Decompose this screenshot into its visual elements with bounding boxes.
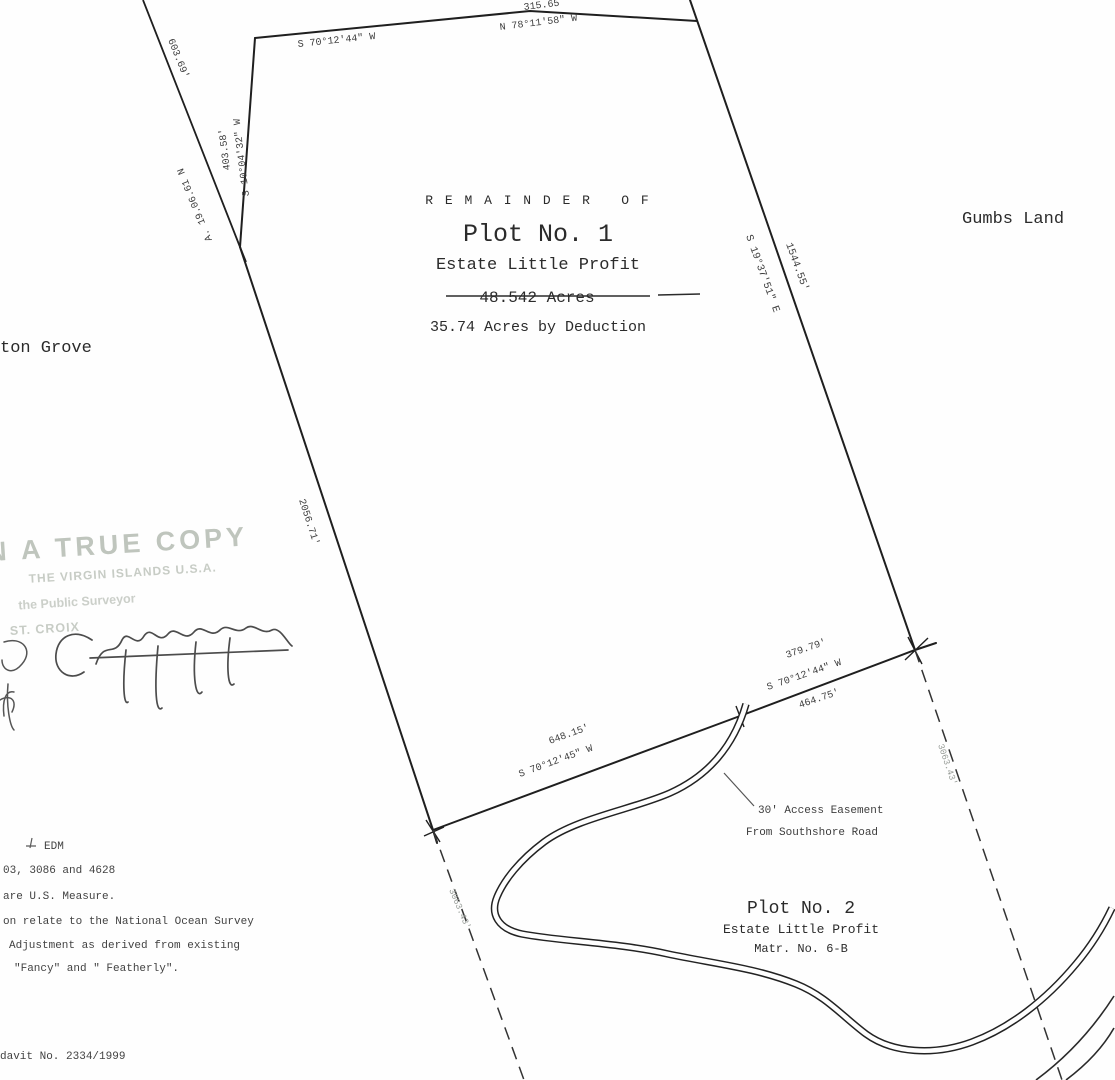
easement-note-line1: 30' Access Easement <box>758 805 883 817</box>
plot2-plot-name: Plot No. 2 <box>747 899 855 919</box>
boundary-line-north <box>255 11 697 38</box>
stamp-line3: the Public Surveyor <box>18 591 136 612</box>
plot2-estate-name: Estate Little Profit <box>723 922 879 937</box>
truncated-character-mark <box>26 838 36 848</box>
title-remainder-of: R E M A I N D E R O F <box>425 193 650 208</box>
title-revised-acreage: 35.74 Acres by Deduction <box>430 319 646 336</box>
note-line5: Adjustment as derived from existing <box>9 940 240 952</box>
label-nw-bearing: S 10°04'32" W <box>232 118 253 197</box>
signature-stroke <box>194 642 202 694</box>
dashed-boundary-east <box>915 650 1062 1080</box>
margin-scribble <box>0 641 27 730</box>
signature-stroke <box>124 650 128 703</box>
easement-leader-line <box>724 773 754 806</box>
title-struck-acreage: 48.542 Acres <box>479 289 594 307</box>
easement-note-line2: From Southshore Road <box>746 827 878 839</box>
scribble-stroke <box>2 641 27 671</box>
dashed-boundary-west <box>433 830 524 1080</box>
label-se-distance-below: 464.75' <box>797 687 841 712</box>
note-docket: davit No. 2334/1999 <box>0 1051 125 1063</box>
signature-stroke <box>90 650 288 658</box>
note-line2: 03, 3086 and 4628 <box>3 865 115 877</box>
title-estate-name: Estate Little Profit <box>436 256 640 275</box>
plot2-matr-no: Matr. No. 6-B <box>754 942 848 956</box>
boundary-line-east <box>690 0 915 650</box>
label-dashed-west-distance: 3063.43' <box>446 887 472 931</box>
label-dashed-east-distance: 3063.43' <box>935 743 959 787</box>
adjoiner-line <box>143 0 246 262</box>
scribble-stroke <box>7 684 14 730</box>
label-west-distance: 2056.71' <box>295 498 321 547</box>
title-plot-name: Plot No. 1 <box>463 220 613 249</box>
boundary-line-west <box>240 247 437 843</box>
adjoiner-left-label: ton Grove <box>0 339 92 358</box>
label-sw-distance: 648.15' <box>547 722 591 748</box>
road-curve-fragment <box>1066 1028 1114 1080</box>
note-line1: EDM <box>44 841 64 853</box>
survey-plat-canvas: R E M A I N D E R O F Plot No. 1 Estate … <box>0 0 1115 1080</box>
label-se-bearing: S 70°12'44" W <box>765 657 843 694</box>
note-line3: are U.S. Measure. <box>3 891 115 903</box>
label-east-distance: 1544.55' <box>782 241 811 292</box>
survey-plat-page: R E M A I N D E R O F Plot No. 1 Estate … <box>0 0 1115 1080</box>
signature-stroke <box>56 634 92 676</box>
stamp-line2: THE VIRGIN ISLANDS U.S.A. <box>28 560 217 585</box>
label-nw-distance: 403.58' <box>217 128 234 171</box>
label-adjoiner-distance: 603.69' <box>164 37 191 80</box>
label-top-seg2-bearing: N 78°11'58" W <box>499 13 578 34</box>
adjoiner-right-label: Gumbs Land <box>962 210 1064 229</box>
surveyor-signature <box>56 626 292 708</box>
label-se-distance-above: 379.79' <box>784 637 828 662</box>
label-adjoiner-note: A. 19.06.61 N <box>176 166 215 242</box>
note-line6: "Fancy" and " Featherly". <box>14 963 179 975</box>
label-top-seg1-bearing: S 70°12'44" W <box>297 31 376 51</box>
boundary-line-south <box>433 643 936 830</box>
plot1-boundary <box>240 0 936 843</box>
signature-stroke <box>228 638 234 685</box>
true-copy-stamp: N A TRUE COPY THE VIRGIN ISLANDS U.S.A. … <box>0 521 253 639</box>
note-line4: on relate to the National Ocean Survey <box>3 916 254 928</box>
